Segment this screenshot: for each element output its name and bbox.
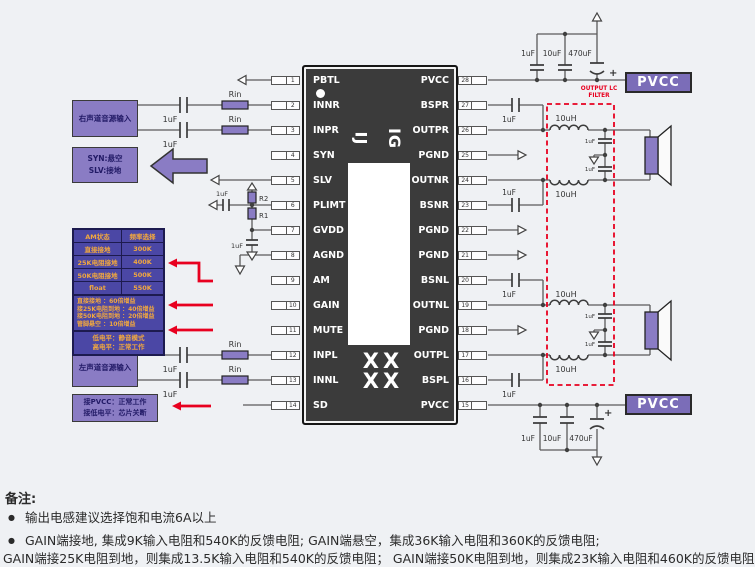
right-channel-input-box: 右声道音源输入 [72,100,138,137]
pin-box: 7 [271,226,300,235]
cap-label: 10uF [543,49,562,58]
notes-title: 备注: [5,488,36,507]
inductor-label: 10uH [555,365,576,374]
gain-select-section: 直接接地 ：60倍增益 接25K电阻到地 ：40倍增益 接50K电阻到地 ：20… [74,294,163,330]
pin-name: INPR [313,118,346,143]
cap-label: 10uF [543,434,562,443]
pin-box: 19 [458,301,487,310]
rin-label: Rin [229,115,242,124]
svg-text:OUTPUT LC: OUTPUT LC [581,86,617,92]
plus-sign: + [604,408,612,419]
cap-label: 1uF [521,434,535,443]
filter-cap-label: 1uF [585,342,595,348]
pin-name: INPL [313,343,346,368]
pin-name: PLIMT [313,193,346,218]
sd-note-box: 接PVCC：正常工作 接低电平：芯片关断 [72,394,158,422]
pin-name: BSPL [411,368,449,393]
rin-label: Rin [229,340,242,349]
speaker-right [645,126,671,185]
pin-box: 12 [271,351,300,360]
pin-name: BSNR [411,193,449,218]
cap-label: 1uF [163,115,178,124]
pin-box: 21 [458,251,487,260]
cap-label: 470uF [568,49,591,58]
pin-name: OUTNR [411,168,449,193]
pin-box: 14 [271,401,300,410]
pin-box: 17 [458,351,487,360]
pin-name: AM [313,268,346,293]
syn-slv-note-box: SYN:悬空 SLV:接地 [72,147,138,183]
pin-name: GVDD [313,218,346,243]
table-row: float550K [74,282,163,294]
pvcc-label-top: PVCC [625,72,692,93]
pin-box: 2 [271,101,300,110]
note-line: GAIN端接25K电阻到地，则集成13.5K输入电阻和540K的反馈电阻； GA… [3,548,754,567]
filter-cap-label: 1uF [585,139,595,145]
pin-box: 3 [271,126,300,135]
table-header-row: AM状态频率选择 [74,230,163,243]
cap-label: 1uF [163,140,178,149]
note-bullet: ●输出电感建议选择饱和电流6A以上 [8,507,217,526]
cap-label: 1uF [163,365,178,374]
inductor-label: 10uH [555,190,576,199]
cap-label: 470uF [569,434,592,443]
pvcc-label-bottom: PVCC [625,394,692,415]
pin-name: PGND [411,318,449,343]
output-lc-filter-label: OUTPUT LC FILTER [581,86,617,99]
ic-marking: IJ [351,132,370,146]
inductors [550,125,588,360]
ic-marking-xx: XX XX [352,351,414,391]
filter-cap-label: 1uF [585,167,595,173]
pin-name: MUTE [313,318,346,343]
table-row: 直接接地300K [74,243,163,256]
pin-name: OUTNL [411,293,449,318]
pin-name: SD [313,393,346,418]
right-pin-names: PVCC BSPR OUTPR PGND OUTNR BSNR PGND PGN… [411,68,449,418]
pin-box: 11 [271,326,300,335]
pin-name: PVCC [411,393,449,418]
amplifier-ic: IJ IG XX XX PBTL INNR INPR SYN SLV PLIMT… [302,65,458,425]
pin-name: SYN [313,143,346,168]
thermal-pad [348,163,410,345]
pin-box: 26 [458,126,487,135]
note-bullet: ●GAIN端接地, 集成9K输入电阻和540K的反馈电阻; GAIN端悬空，集成… [8,530,600,549]
bootstrap-cap-label: 1uF [502,290,516,299]
cap-label: 1uF [216,190,228,198]
mute-section: 低电平：静音模式 高电平：正常工作 [74,330,163,354]
bootstrap-cap-label: 1uF [502,390,516,399]
resistor-label: R1 [259,212,268,220]
cap-label: 1uF [231,242,243,250]
rin-label: Rin [229,90,242,99]
pin-box: 24 [458,176,487,185]
pin-box: 25 [458,151,487,160]
ic-marking: IG [385,128,404,149]
electrolytic-curved-plates [590,71,604,429]
pin-box: 22 [458,226,487,235]
pin-name: PVCC [411,68,449,93]
plus-sign: + [609,68,617,79]
gain-row: 管脚悬空 ：10倍增益 [74,321,163,329]
pin-box: 15 [458,401,487,410]
pin-name: PBTL [313,68,346,93]
pin-name: GAIN [313,293,346,318]
inductor-label: 10uH [555,290,576,299]
pin-name: SLV [313,168,346,193]
pin-box: 13 [271,376,300,385]
table-row: 50K电阻接地500K [74,269,163,282]
pin-box: 6 [271,201,300,210]
left-pin-names: PBTL INNR INPR SYN SLV PLIMT GVDD AGND A… [313,68,346,418]
mute-row: 高电平：正常工作 [74,343,163,352]
pin-box: 18 [458,326,487,335]
pin-box: 20 [458,276,487,285]
pin-name: OUTPR [411,118,449,143]
pin-name: PGND [411,243,449,268]
schematic-page: Rin Rin Rin Rin 1uF 1uF 1uF 1uF 1uF 1uF … [0,0,755,567]
filter-cap-label: 1uF [585,314,595,320]
pin-name: PGND [411,143,449,168]
speaker-left [645,301,671,360]
svg-text:FILTER: FILTER [588,93,610,99]
pin-box: 27 [458,101,487,110]
pin-box: 10 [271,301,300,310]
bootstrap-cap-label: 1uF [502,115,516,124]
pin-box: 8 [271,251,300,260]
mute-row: 低电平：静音模式 [74,334,163,343]
cap-label: 1uF [521,49,535,58]
gain-row: 直接接地 ：60倍增益 [74,298,163,306]
pin-box: 4 [271,151,300,160]
pin-box: 5 [271,176,300,185]
pin-name: PGND [411,218,449,243]
pin-box: 9 [271,276,300,285]
gain-row: 接25K电阻到地 ：40倍增益 [74,306,163,314]
rin-label: Rin [229,365,242,374]
am-config-table: AM状态频率选择 直接接地300K 25K电阻接地400K 50K电阻接地500… [72,228,165,356]
pin-box: 23 [458,201,487,210]
bootstrap-cap-label: 1uF [502,188,516,197]
pin-box: 1 [271,76,300,85]
cap-label: 1uF [163,390,178,399]
bullet-icon: ● [8,513,15,522]
pin-name: BSNL [411,268,449,293]
pin-box: 28 [458,76,487,85]
gain-row: 接50K电阻到地 ：20倍增益 [74,313,163,321]
frequency-select-section: AM状态频率选择 直接接地300K 25K电阻接地400K 50K电阻接地500… [74,230,163,294]
pin-name: INNL [313,368,346,393]
table-row: 25K电阻接地400K [74,256,163,269]
inductor-label: 10uH [555,114,576,123]
pin-name: INNR [313,93,346,118]
red-annotation-arrows [168,259,213,411]
pin-name: AGND [313,243,346,268]
syn-slv-pointer-arrow [151,149,207,183]
bullet-icon: ● [8,536,15,545]
pin-name: OUTPL [411,343,449,368]
resistor-label: R2 [259,195,268,203]
pin-name: BSPR [411,93,449,118]
pin-box: 16 [458,376,487,385]
